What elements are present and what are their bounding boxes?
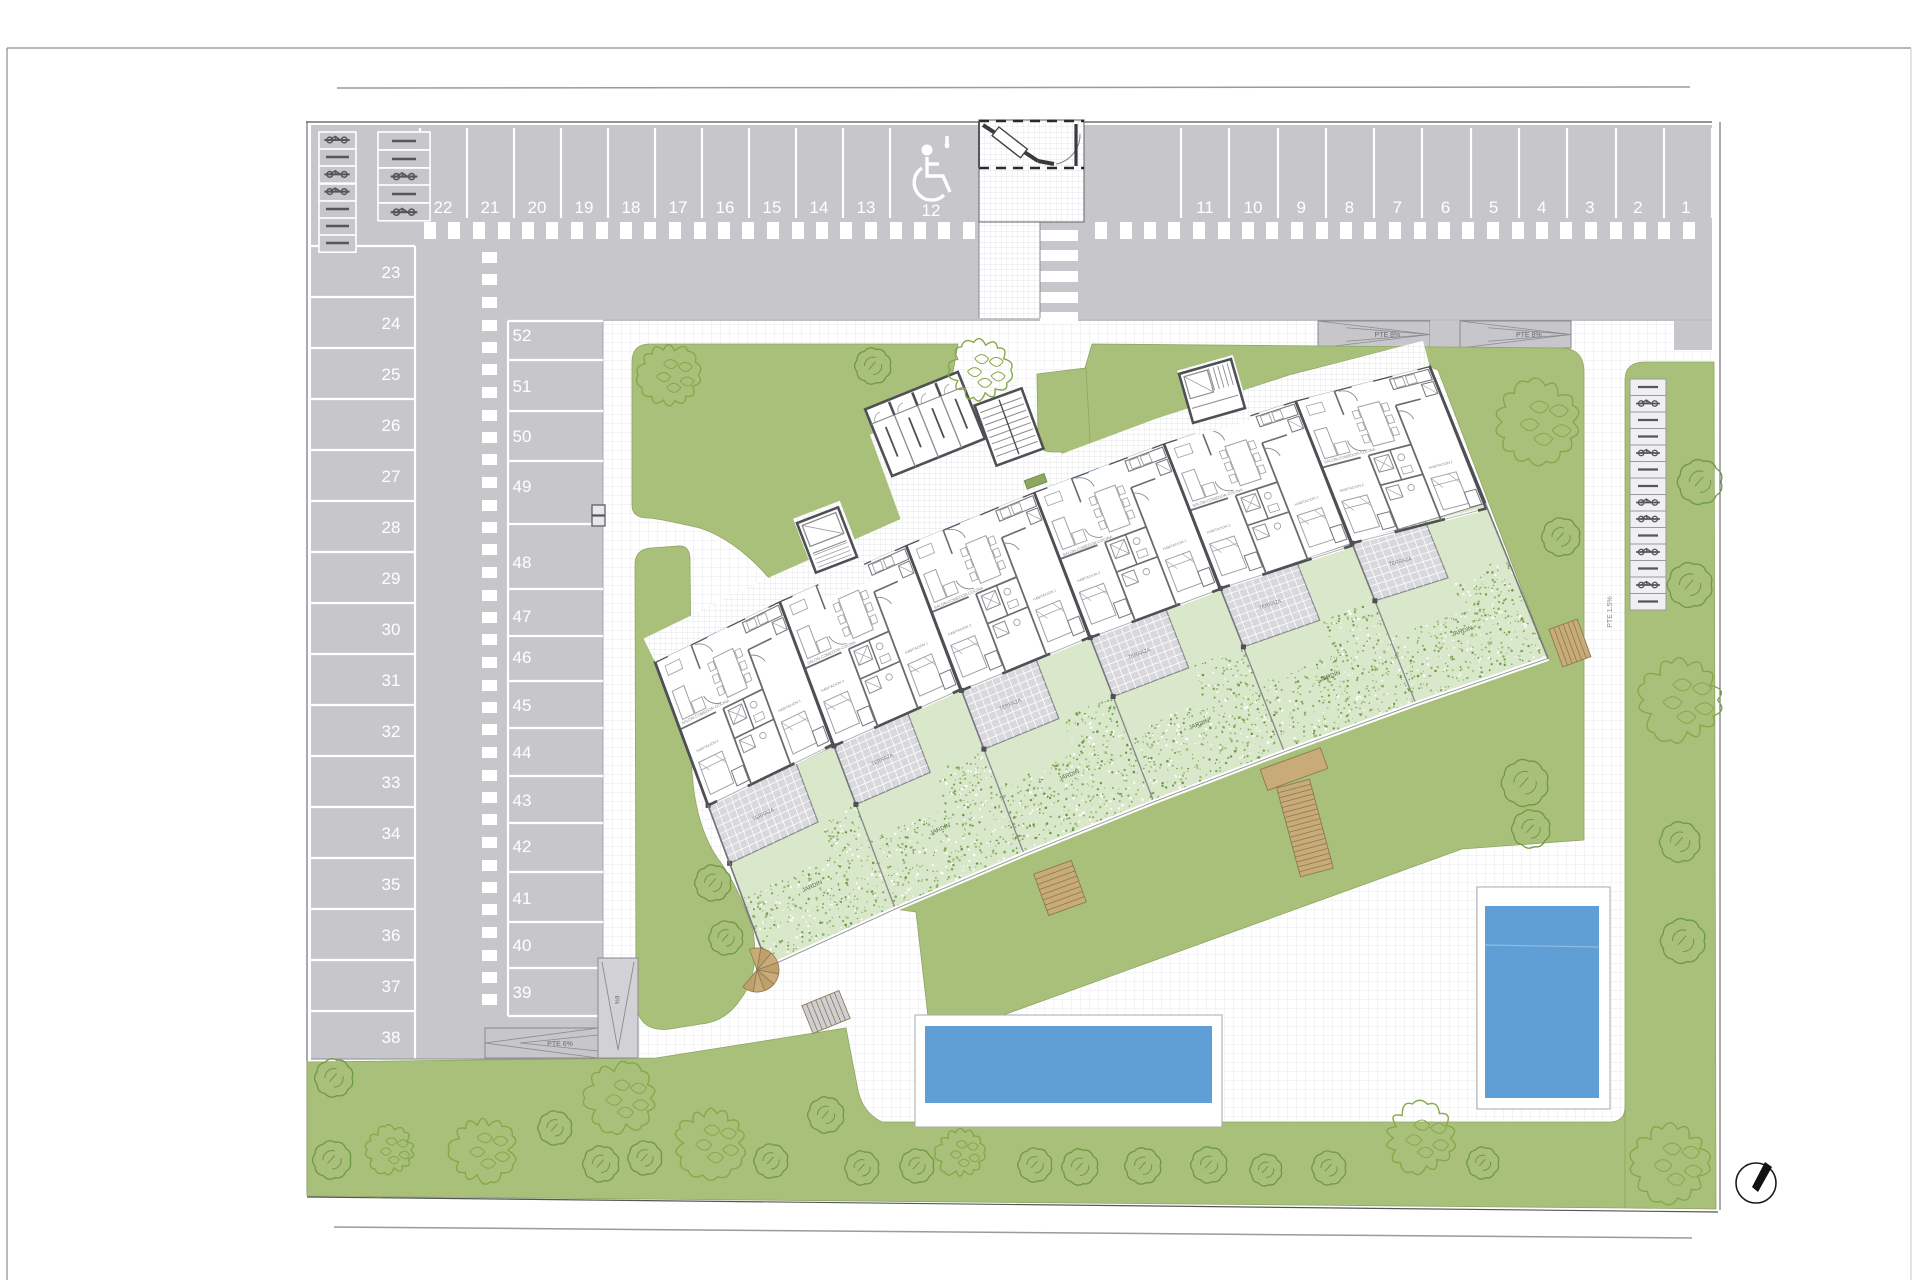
svg-text:PTE 1.5%: PTE 1.5% (1607, 596, 1614, 628)
svg-text:41: 41 (513, 889, 532, 908)
svg-text:21: 21 (481, 198, 500, 217)
svg-text:17: 17 (669, 198, 688, 217)
svg-text:31: 31 (382, 671, 401, 690)
svg-text:30: 30 (382, 620, 401, 639)
svg-text:40: 40 (513, 936, 532, 955)
svg-text:25: 25 (382, 365, 401, 384)
svg-text:27: 27 (382, 467, 401, 486)
svg-text:37: 37 (382, 977, 401, 996)
svg-text:38: 38 (382, 1028, 401, 1047)
svg-text:4: 4 (1537, 198, 1546, 217)
svg-text:5: 5 (1489, 198, 1498, 217)
svg-text:1: 1 (1681, 198, 1690, 217)
svg-text:19: 19 (575, 198, 594, 217)
svg-text:49: 49 (513, 477, 532, 496)
svg-text:10: 10 (1244, 198, 1263, 217)
svg-text:42: 42 (513, 837, 532, 856)
svg-text:23: 23 (382, 263, 401, 282)
svg-text:50: 50 (513, 427, 532, 446)
svg-text:20: 20 (528, 198, 547, 217)
svg-text:6: 6 (1441, 198, 1450, 217)
svg-text:48: 48 (513, 553, 532, 572)
svg-text:44: 44 (513, 743, 532, 762)
svg-text:28: 28 (382, 518, 401, 537)
svg-text:32: 32 (382, 722, 401, 741)
svg-text:47: 47 (513, 607, 532, 626)
svg-text:7: 7 (1393, 198, 1402, 217)
svg-text:35: 35 (382, 875, 401, 894)
svg-text:9: 9 (1296, 198, 1305, 217)
svg-text:12: 12 (922, 201, 941, 220)
svg-text:15: 15 (763, 198, 782, 217)
svg-text:52: 52 (513, 326, 532, 345)
svg-text:18: 18 (622, 198, 641, 217)
svg-text:6%: 6% (613, 996, 619, 1005)
svg-text:11: 11 (1196, 198, 1214, 217)
svg-text:24: 24 (382, 314, 401, 333)
svg-text:PTE 8%: PTE 8% (1516, 332, 1542, 339)
svg-text:26: 26 (382, 416, 401, 435)
svg-text:PTE 8%: PTE 8% (1375, 332, 1401, 339)
svg-text:33: 33 (382, 773, 401, 792)
svg-text:45: 45 (513, 696, 532, 715)
svg-text:PTE 6%: PTE 6% (547, 1041, 573, 1048)
svg-text:39: 39 (513, 983, 532, 1002)
svg-text:8: 8 (1345, 198, 1354, 217)
svg-text:43: 43 (513, 791, 532, 810)
svg-text:51: 51 (513, 377, 532, 396)
svg-text:13: 13 (857, 198, 876, 217)
svg-text:46: 46 (513, 648, 532, 667)
svg-text:14: 14 (810, 198, 829, 217)
svg-text:16: 16 (716, 198, 735, 217)
svg-text:29: 29 (382, 569, 401, 588)
svg-text:36: 36 (382, 926, 401, 945)
svg-text:3: 3 (1585, 198, 1594, 217)
svg-text:34: 34 (382, 824, 401, 843)
svg-text:22: 22 (434, 198, 453, 217)
svg-text:2: 2 (1633, 198, 1642, 217)
